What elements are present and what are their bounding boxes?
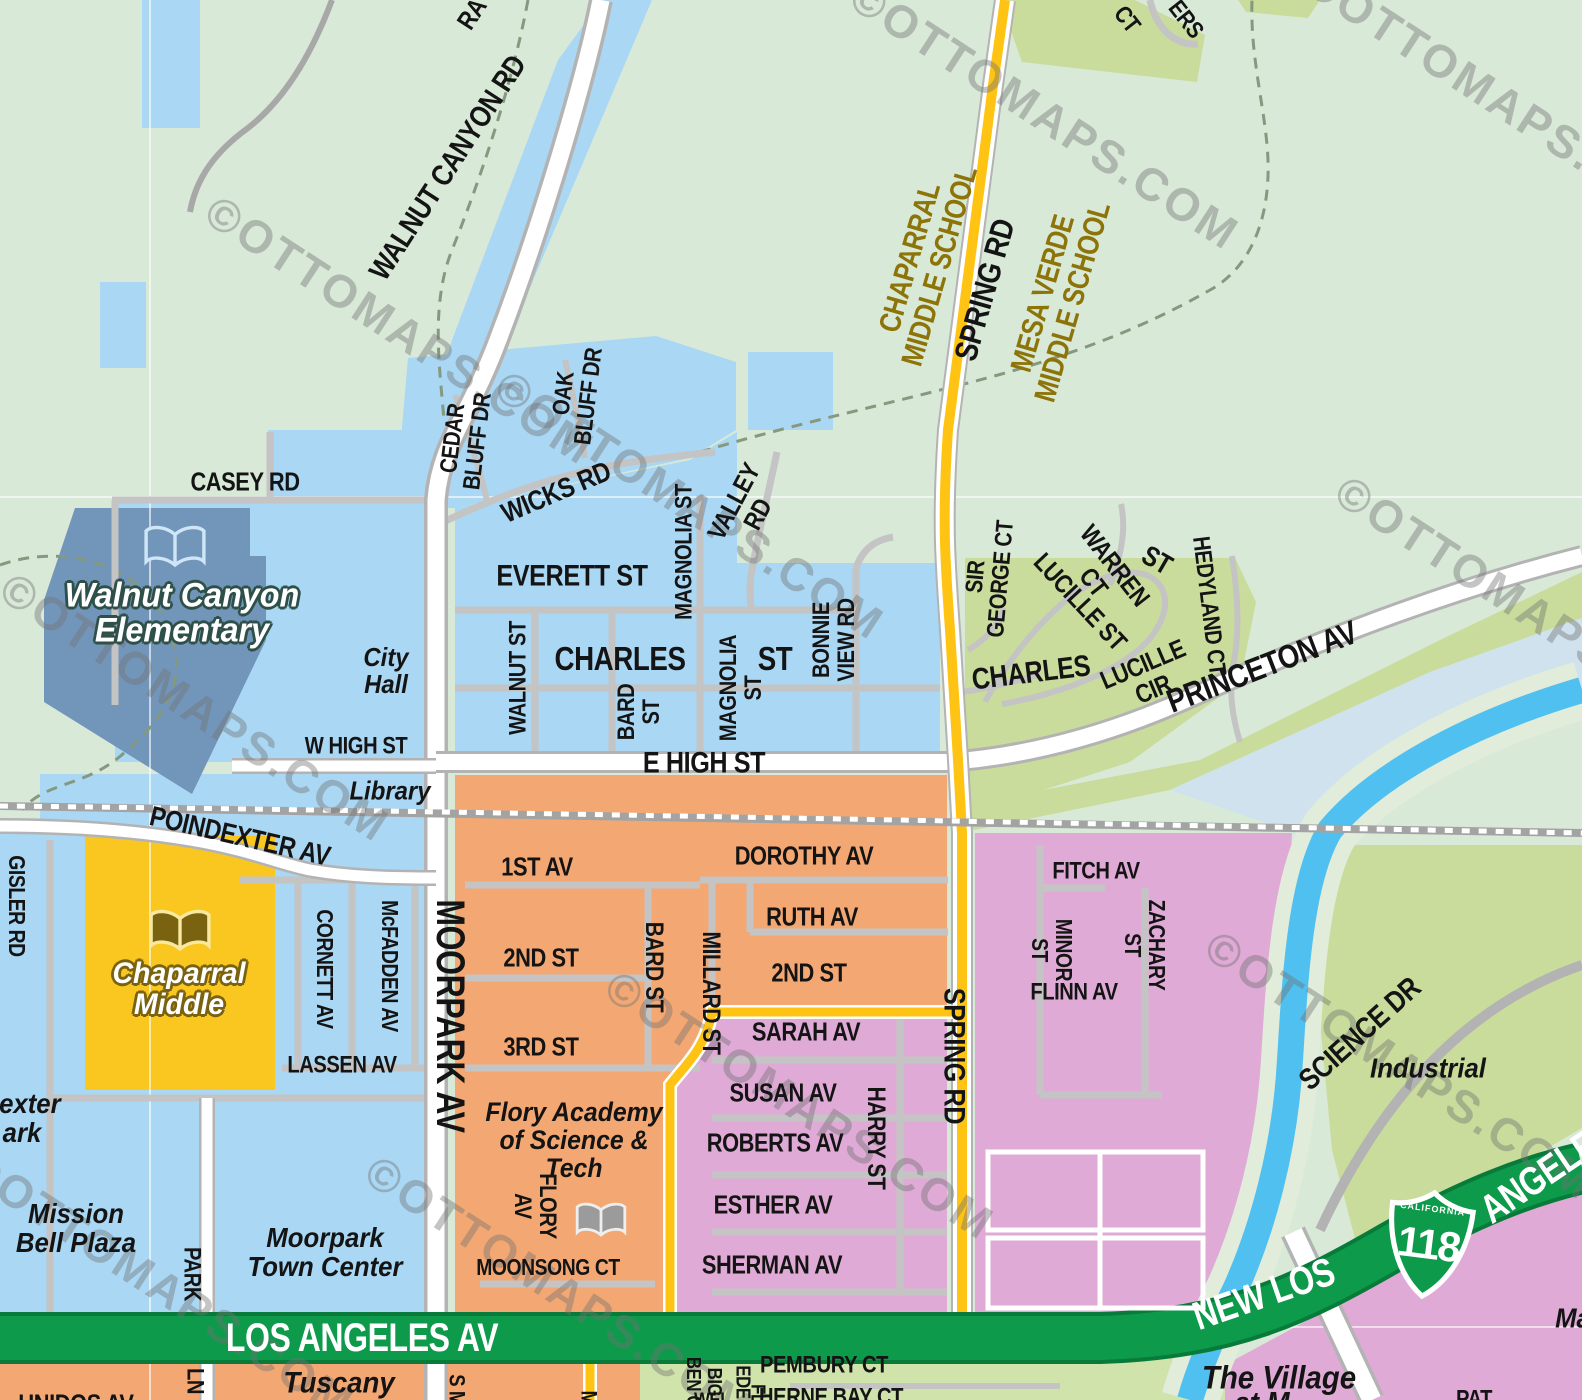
label-minor-st: MINOR ST xyxy=(1027,919,1075,981)
label-gisler-rd: GISLER RD xyxy=(4,855,28,956)
label-los-angeles-av: LOS ANGELES AV xyxy=(226,1318,498,1360)
label-moorpark-town-center: Moorpark Town Center xyxy=(247,1223,402,1281)
label-pat-fragment: PAT xyxy=(1456,1388,1492,1400)
label-susan-av: SUSAN AV xyxy=(729,1079,836,1106)
label-pembury-ct: PEMBURY CT xyxy=(760,1354,888,1379)
label-w-high-st: W HIGH ST xyxy=(305,735,408,760)
label-park-ln-ln: LN xyxy=(182,1368,207,1394)
label-sir-george-ct: SIR GEORGE CT xyxy=(959,517,1019,638)
label-fitch-av: FITCH AV xyxy=(1052,860,1139,885)
school-book-icon-elementary xyxy=(146,528,204,565)
label-park-ln-park: PARK xyxy=(179,1247,204,1301)
label-at-m-fragment: at M xyxy=(1234,1387,1289,1400)
label-chaparral-middle: Chaparral Middle xyxy=(112,958,245,1020)
label-bonnie-view-rd: BONNIE VIEW RD xyxy=(810,598,860,681)
label-mcfadden-av: McFADDEN AV xyxy=(377,900,401,1032)
label-poindexter-park-fragment: dexter ark xyxy=(0,1089,61,1147)
label-s-m-fragment: S M xyxy=(445,1374,468,1400)
school-book-icon-chaparral xyxy=(151,912,209,949)
label-ruth-av: RUTH AV xyxy=(766,903,858,930)
highway-118-shield: CALIFORNIA 118 xyxy=(1369,1181,1487,1314)
label-lassen-av: LASSEN AV xyxy=(287,1054,396,1079)
label-e-high-st: E HIGH ST xyxy=(643,747,765,778)
label-industrial: Industrial xyxy=(1370,1053,1486,1082)
label-spring-rd-lower: SPRING RD xyxy=(938,988,969,1124)
label-1st-av: 1ST AV xyxy=(501,853,573,880)
label-flinn-av: FLINN AV xyxy=(1030,981,1117,1006)
label-everett-st: EVERETT ST xyxy=(496,560,647,591)
label-sherman-av: SHERMAN AV xyxy=(702,1251,842,1278)
label-bard-st-south: BARD ST xyxy=(641,922,667,1012)
label-2nd-st-east: 2ND ST xyxy=(771,959,846,986)
label-casey-rd: CASEY RD xyxy=(190,468,299,495)
school-book-icon-flory xyxy=(577,1204,625,1235)
label-zachary-st: ZACHARY ST xyxy=(1120,900,1168,991)
label-tuscany: Tuscany xyxy=(283,1367,394,1398)
label-walnut-canyon-elementary: Walnut Canyon Elementary xyxy=(65,579,299,650)
label-sarah-av: SARAH AV xyxy=(752,1018,860,1045)
label-wel-fragment: WEL xyxy=(694,1391,730,1400)
label-bard-st-north: BARD ST xyxy=(615,684,665,741)
moorpark-street-map: ©OTTOMAPS.COM ©OTTOMAPS.COM ©OTTOMAPS.CO… xyxy=(0,0,1582,1400)
label-dorothy-av: DOROTHY AV xyxy=(735,842,874,869)
label-flory-academy: Flory Academy of Science & Tech xyxy=(485,1098,662,1182)
label-mission-bell-plaza: Mission Bell Plaza xyxy=(16,1199,136,1257)
label-city-hall: City Hall xyxy=(363,644,408,698)
label-unidos-av-fragment: UNIDOS AV xyxy=(18,1390,133,1400)
label-roberts-av: ROBERTS AV xyxy=(707,1129,844,1156)
label-herne-bay-ct: HERNE BAY CT xyxy=(759,1386,903,1400)
label-esther-av: ESTHER AV xyxy=(714,1191,833,1218)
label-3rd-st: 3RD ST xyxy=(503,1033,578,1060)
label-ma-fragment: Ma xyxy=(1555,1303,1582,1332)
label-m-fragment: M xyxy=(577,1391,600,1400)
label-harry-st: HARRY ST xyxy=(863,1087,889,1190)
dirt-road xyxy=(190,0,332,212)
label-flory-av: FLORY AV xyxy=(509,1173,559,1238)
label-cornett-av: CORNETT AV xyxy=(312,909,336,1028)
label-magnolia-st-south: MAGNOLIA ST xyxy=(717,635,767,741)
label-millard-st: MILLARD ST xyxy=(698,932,724,1055)
label-moonsong-ct: MOONSONG CT xyxy=(476,1256,620,1280)
label-walnut-st: WALNUT ST xyxy=(507,621,532,735)
label-charles-st: CHARLES xyxy=(554,642,685,676)
label-2nd-st-west: 2ND ST xyxy=(503,944,578,971)
label-moorpark-av: MOORPARK AV xyxy=(428,899,470,1132)
label-library: Library xyxy=(349,777,430,804)
label-magnolia-st-north: MAGNOLIA ST xyxy=(673,484,698,620)
